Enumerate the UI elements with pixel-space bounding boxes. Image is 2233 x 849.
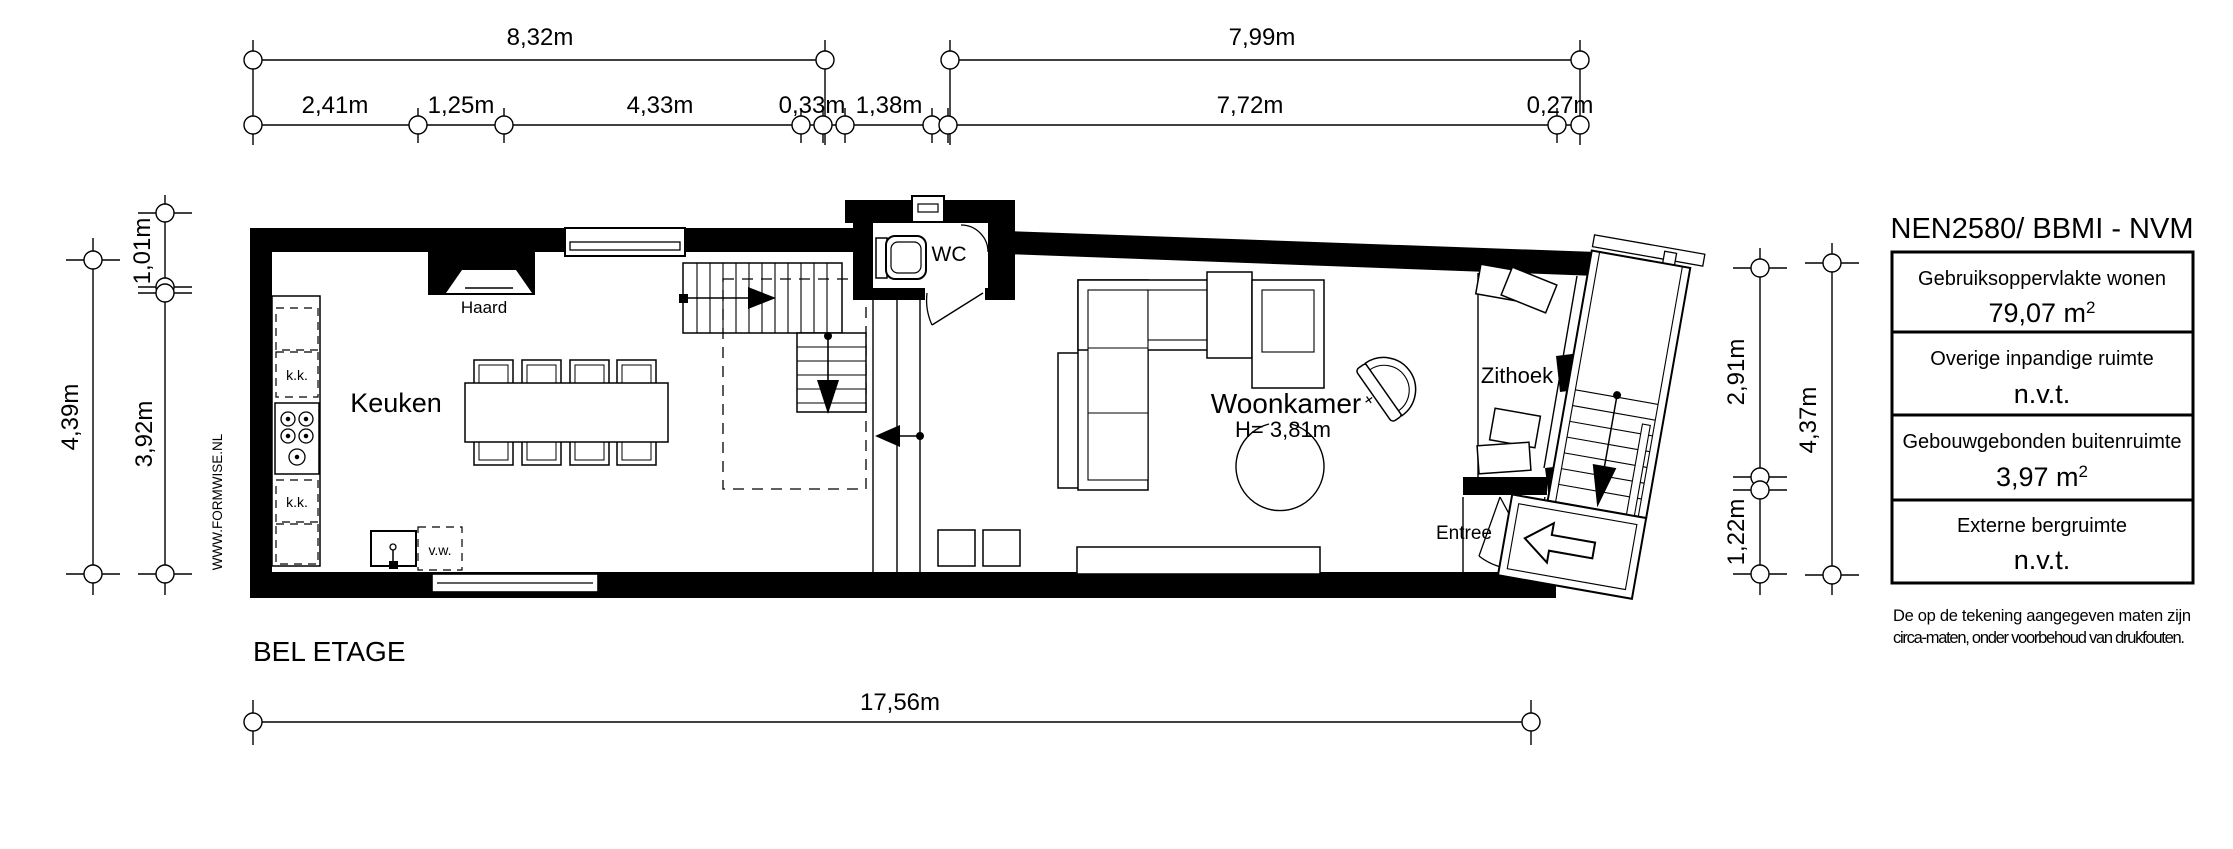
legend-title: NEN2580/ BBMI - NVM bbox=[1891, 213, 2194, 245]
plan-title: BEL ETAGE bbox=[253, 636, 406, 667]
room-label-entree: Entree bbox=[1436, 523, 1492, 544]
hallway bbox=[873, 300, 1020, 572]
room-label-wc: WC bbox=[932, 243, 967, 266]
corner-sofa bbox=[1058, 272, 1324, 490]
interior-stairs bbox=[679, 263, 866, 489]
dim-1-22: 1,22m bbox=[1723, 499, 1750, 566]
sideboard bbox=[1077, 547, 1320, 574]
legend-row-2-label: Overige inpandige ruimte bbox=[1930, 348, 2153, 370]
legend-row-4-value: n.v.t. bbox=[2014, 545, 2071, 575]
dim-2-91: 2,91m bbox=[1723, 339, 1750, 406]
sofa-table bbox=[1207, 272, 1252, 358]
legend: NEN2580/ BBMI - NVM Gebruiksoppervlakte … bbox=[1891, 213, 2194, 647]
dim-4-37: 4,37m bbox=[1795, 387, 1822, 454]
dimensions-bottom: 17,56m bbox=[244, 689, 1540, 745]
dim-top-7-99: 7,99m bbox=[1229, 24, 1296, 51]
dining-table bbox=[465, 360, 668, 465]
side-table-1 bbox=[938, 530, 975, 566]
toilet bbox=[876, 236, 926, 279]
dimensions-left: 1,01m 3,92m 4,39m bbox=[57, 195, 192, 595]
dim-17-56: 17,56m bbox=[860, 689, 940, 716]
kitchen-cabinet-label-2: k.k. bbox=[286, 494, 308, 510]
room-label-woonkamer: Woonkamer bbox=[1211, 388, 1361, 419]
entree-wall bbox=[1463, 477, 1547, 495]
legend-disclaimer-line-2: circa-maten, onder voorbehoud van drukfo… bbox=[1893, 629, 2185, 647]
hall-arrow bbox=[875, 425, 924, 447]
legend-row-3-label: Gebouwgebonden buitenruimte bbox=[1902, 431, 2181, 453]
dim-7-72: 7,72m bbox=[1217, 92, 1284, 119]
dim-4-33: 4,33m bbox=[627, 92, 694, 119]
fireplace-label: Haard bbox=[461, 298, 507, 317]
dim-0-33: 0,33m bbox=[779, 92, 846, 119]
side-table-2 bbox=[983, 530, 1020, 566]
legend-disclaimer-line-1: De op de tekening aangegeven maten zijn bbox=[1893, 607, 2191, 625]
legend-row-4-label: Externe bergruimte bbox=[1957, 515, 2127, 537]
dim-0-27: 0,27m bbox=[1527, 92, 1594, 119]
dishwasher-label: v.w. bbox=[428, 542, 451, 558]
ceiling-height-label: H= 3,81m bbox=[1235, 417, 1331, 442]
dim-top-8-32: 8,32m bbox=[507, 24, 574, 51]
floorplan-drawing: 8,32m 7,99m 2,41m 1,25m 4,33m 0,33m 1,38… bbox=[0, 0, 2233, 849]
zithoek-chair-4 bbox=[1477, 442, 1531, 474]
kitchen: k.k. k.k. v.w. Keuken Haard bbox=[272, 296, 668, 570]
window-bottom bbox=[432, 574, 598, 592]
room-label-zithoek: Zithoek bbox=[1481, 363, 1554, 388]
wc-door-bottom bbox=[927, 293, 983, 325]
window-top bbox=[565, 228, 685, 256]
dim-1-25: 1,25m bbox=[428, 92, 495, 119]
dim-1-38: 1,38m bbox=[856, 92, 923, 119]
dim-3-92: 3,92m bbox=[131, 401, 158, 468]
sink bbox=[371, 531, 416, 569]
kitchen-cabinet-label-1: k.k. bbox=[286, 367, 308, 383]
dim-4-39: 4,39m bbox=[57, 384, 84, 451]
dimensions-right: 2,91m 1,22m 4,37m bbox=[1723, 243, 1859, 595]
living-room: Woonkamer H= 3,81m bbox=[1058, 272, 1428, 574]
room-label-keuken: Keuken bbox=[350, 388, 442, 418]
legend-row-1-label: Gebruiksoppervlakte wonen bbox=[1918, 268, 2166, 290]
zithoek-chair-3 bbox=[1490, 408, 1541, 448]
legend-row-3-value: 3,97 m2 bbox=[1996, 462, 2088, 492]
wc-basin bbox=[912, 196, 944, 222]
floorplan-page: 8,32m 7,99m 2,41m 1,25m 4,33m 0,33m 1,38… bbox=[0, 0, 2233, 849]
legend-row-1-value: 79,07 m2 bbox=[1988, 298, 2095, 328]
dimensions-top: 8,32m 7,99m 2,41m 1,25m 4,33m 0,33m 1,38… bbox=[244, 24, 1593, 145]
legend-row-2-value: n.v.t. bbox=[2014, 379, 2071, 409]
watermark: WWW.FORMWISE.NL bbox=[210, 433, 225, 570]
dim-1-01: 1,01m bbox=[129, 218, 156, 285]
dim-2-41: 2,41m bbox=[302, 92, 369, 119]
